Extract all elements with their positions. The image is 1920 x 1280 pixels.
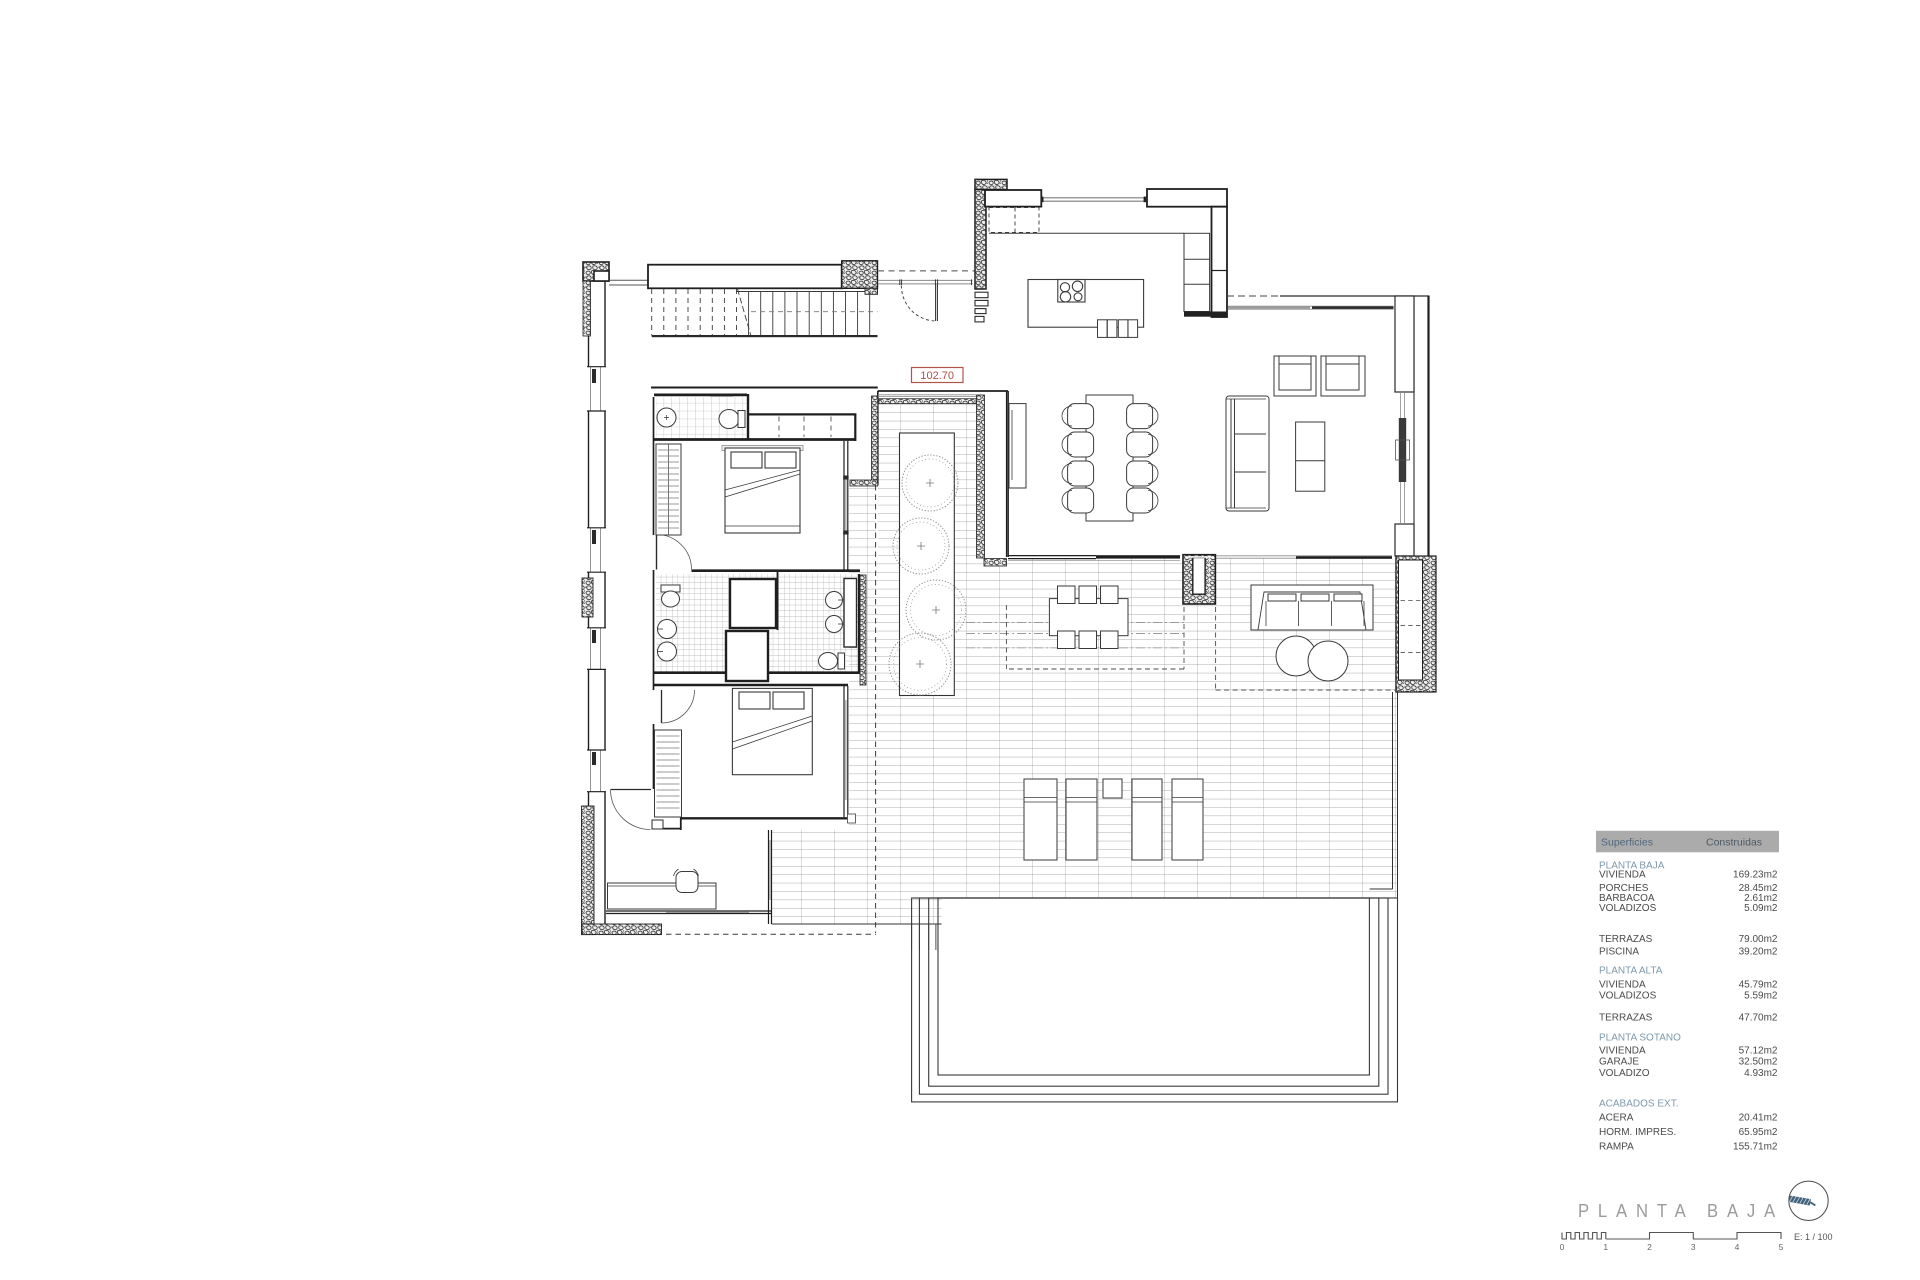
svg-text:5.09m2: 5.09m2: [1744, 903, 1778, 914]
svg-text:GARAJE: GARAJE: [1599, 1057, 1639, 1068]
svg-text:45.79m2: 45.79m2: [1739, 980, 1778, 991]
svg-text:ACABADOS EXT.: ACABADOS EXT.: [1599, 1099, 1678, 1110]
svg-text:57.12m2: 57.12m2: [1739, 1046, 1778, 1057]
svg-text:VIVIENDA: VIVIENDA: [1599, 980, 1646, 991]
svg-text:20.41m2: 20.41m2: [1739, 1113, 1778, 1124]
svg-text:PLANTA SOTANO: PLANTA SOTANO: [1599, 1033, 1681, 1044]
svg-text:HORM. IMPRES.: HORM. IMPRES.: [1599, 1127, 1676, 1138]
svg-text:5: 5: [1779, 1242, 1784, 1252]
svg-text:65.95m2: 65.95m2: [1739, 1127, 1778, 1138]
svg-text:169.23m2: 169.23m2: [1733, 870, 1778, 881]
svg-text:47.70m2: 47.70m2: [1739, 1013, 1778, 1024]
svg-text:VOLADIZO: VOLADIZO: [1599, 1068, 1650, 1079]
svg-text:4: 4: [1735, 1242, 1740, 1252]
svg-text:39.20m2: 39.20m2: [1739, 947, 1778, 958]
svg-text:VOLADIZOS: VOLADIZOS: [1599, 991, 1657, 1002]
svg-text:3: 3: [1691, 1242, 1696, 1252]
svg-text:TERRAZAS: TERRAZAS: [1599, 1013, 1653, 1024]
svg-text:VOLADIZOS: VOLADIZOS: [1599, 903, 1657, 914]
svg-text:32.50m2: 32.50m2: [1739, 1057, 1778, 1068]
svg-text:1: 1: [1603, 1242, 1608, 1252]
svg-text:VIVIENDA: VIVIENDA: [1599, 870, 1646, 881]
svg-text:PLANTA ALTA: PLANTA ALTA: [1599, 966, 1663, 977]
svg-text:155.71m2: 155.71m2: [1733, 1142, 1778, 1153]
svg-text:102.70: 102.70: [920, 370, 954, 382]
svg-text:0: 0: [1560, 1242, 1565, 1252]
svg-text:4.93m2: 4.93m2: [1744, 1068, 1778, 1079]
svg-text:2: 2: [1647, 1242, 1652, 1252]
svg-text:PISCINA: PISCINA: [1599, 947, 1639, 958]
svg-text:ACERA: ACERA: [1599, 1113, 1634, 1124]
svg-text:5.59m2: 5.59m2: [1744, 991, 1778, 1002]
svg-text:PLANTA BAJA: PLANTA BAJA: [1578, 1201, 1784, 1221]
svg-text:TERRAZAS: TERRAZAS: [1599, 934, 1653, 945]
svg-text:VIVIENDA: VIVIENDA: [1599, 1046, 1646, 1057]
svg-text:RAMPA: RAMPA: [1599, 1142, 1634, 1153]
svg-text:Superficies: Superficies: [1601, 837, 1653, 849]
svg-text:79.00m2: 79.00m2: [1739, 934, 1778, 945]
svg-text:Construidas: Construidas: [1706, 837, 1762, 849]
svg-text:E: 1 / 100: E: 1 / 100: [1794, 1232, 1833, 1242]
